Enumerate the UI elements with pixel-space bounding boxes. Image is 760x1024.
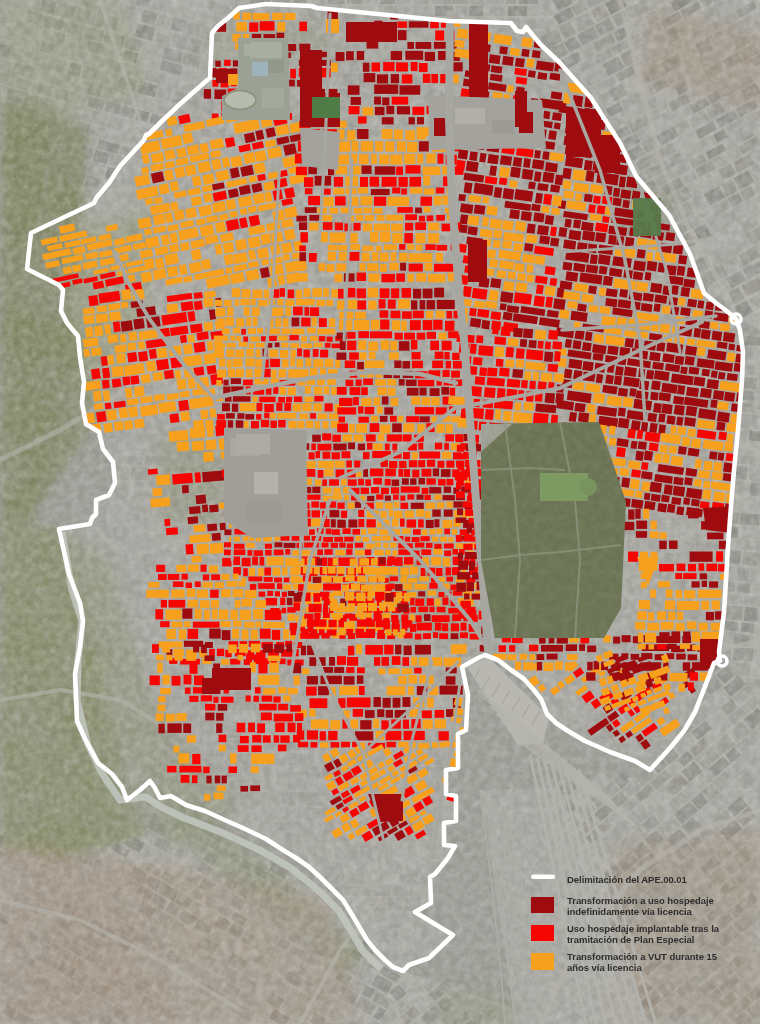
svg-text:Delimitación del APE.00.01: Delimitación del APE.00.01 (567, 874, 688, 885)
svg-text:tramitación de Plan Especial: tramitación de Plan Especial (567, 934, 694, 945)
svg-text:Transformación a uso hospedaje: Transformación a uso hospedaje (567, 895, 714, 906)
svg-text:indefinidamente vía licencia: indefinidamente vía licencia (567, 906, 693, 917)
svg-text:Uso hospedaje implantable tras: Uso hospedaje implantable tras la (567, 923, 720, 934)
svg-text:Transformación a VUT durante 1: Transformación a VUT durante 15 (567, 951, 718, 962)
svg-text:años vía licencia: años vía licencia (567, 962, 642, 973)
